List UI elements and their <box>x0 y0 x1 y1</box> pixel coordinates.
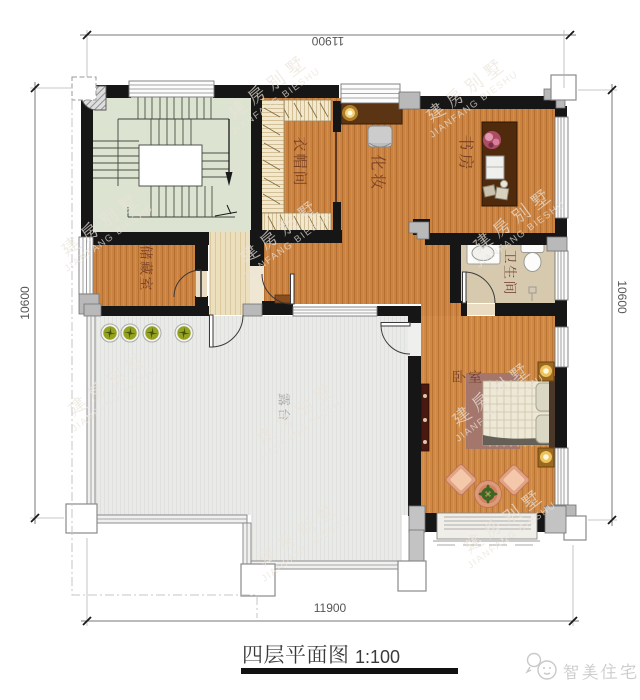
svg-text:11900: 11900 <box>311 34 344 48</box>
svg-text:1:100: 1:100 <box>355 647 400 667</box>
svg-text:10600: 10600 <box>615 280 629 314</box>
svg-text:10600: 10600 <box>18 286 32 320</box>
svg-text:11900: 11900 <box>314 601 347 615</box>
